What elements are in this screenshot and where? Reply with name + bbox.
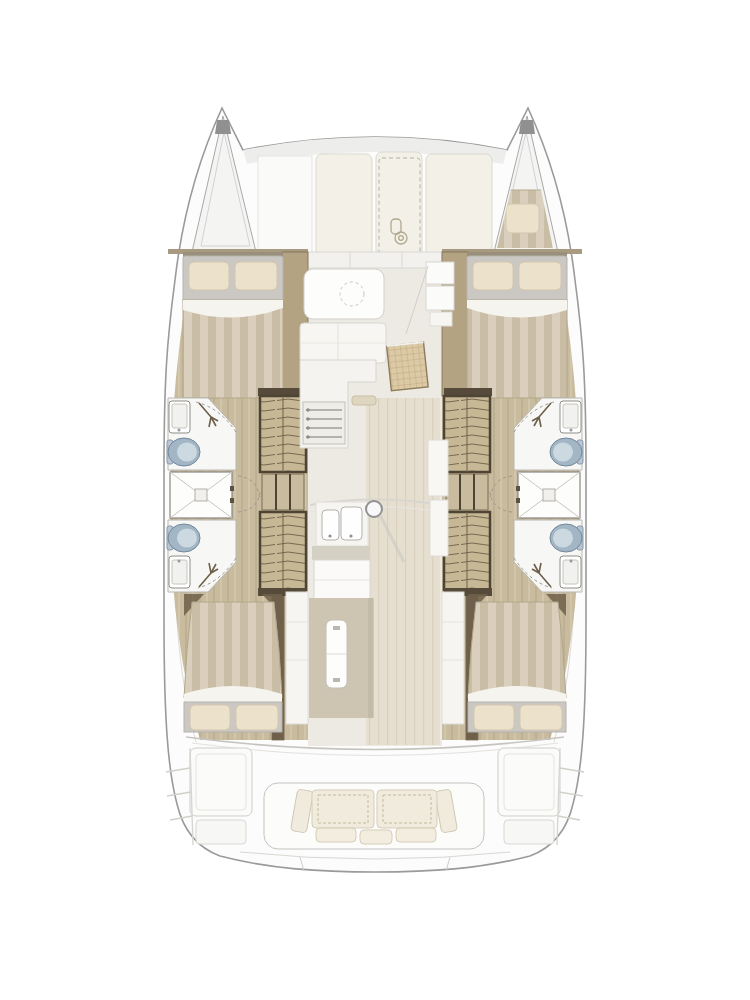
port-bow-cap xyxy=(215,120,231,134)
floorplan-canvas xyxy=(0,0,750,1000)
forward-dinette xyxy=(300,269,386,363)
sink xyxy=(560,401,581,433)
seat-cushion xyxy=(312,790,374,828)
salon-front-windows xyxy=(308,252,442,268)
pillow xyxy=(473,262,513,290)
pillow xyxy=(236,705,278,730)
pillow xyxy=(474,705,514,730)
duvet xyxy=(184,602,282,698)
port-forward-bed xyxy=(183,252,283,398)
pillow xyxy=(189,262,229,290)
pillow xyxy=(235,262,277,290)
starboard-companionway xyxy=(444,388,492,596)
cockpit-bench xyxy=(498,748,560,816)
dinette-table xyxy=(304,269,384,319)
sink xyxy=(169,401,190,433)
galley-sink-unit xyxy=(312,502,370,602)
stairs-landing xyxy=(446,474,488,510)
stern-locker xyxy=(504,820,554,844)
toilet xyxy=(550,438,583,466)
sofa-pillow xyxy=(396,828,436,842)
duvet xyxy=(468,602,566,698)
door-hinge xyxy=(230,498,234,503)
rattan-cabinet xyxy=(387,342,429,391)
door-hinge xyxy=(230,486,234,491)
sink xyxy=(169,556,190,588)
port-companionway xyxy=(258,388,306,596)
stairs-landing xyxy=(262,474,304,510)
cooktop xyxy=(303,402,345,444)
sofa-pillow xyxy=(360,830,392,844)
starboard-aft-bed xyxy=(468,594,566,732)
stern-locker xyxy=(196,820,246,844)
oven-handle xyxy=(352,396,376,405)
pillow xyxy=(519,262,561,290)
sunpad-panel-3 xyxy=(426,154,492,264)
toilet xyxy=(550,524,583,552)
catamaran-floorplan xyxy=(0,0,750,1000)
starboard-forward-bed xyxy=(467,252,567,398)
sunpad-panel-2 xyxy=(376,152,422,264)
sunpad-panel-1 xyxy=(316,154,372,264)
starboard-bow-cap xyxy=(519,120,535,134)
cockpit-bench xyxy=(190,748,252,816)
pillow xyxy=(520,705,562,730)
cockpit-sofa xyxy=(264,783,484,849)
sink xyxy=(560,556,581,588)
salon-island xyxy=(309,598,374,718)
door-hinge xyxy=(516,498,520,503)
sofa-pillow xyxy=(316,828,356,842)
toilet xyxy=(167,524,200,552)
pillow xyxy=(190,705,230,730)
forepeak-pillow xyxy=(506,204,539,233)
door-hinge xyxy=(516,486,520,491)
toilet xyxy=(167,438,200,466)
port-aft-bed xyxy=(184,594,282,732)
seat-cushion xyxy=(377,790,437,828)
